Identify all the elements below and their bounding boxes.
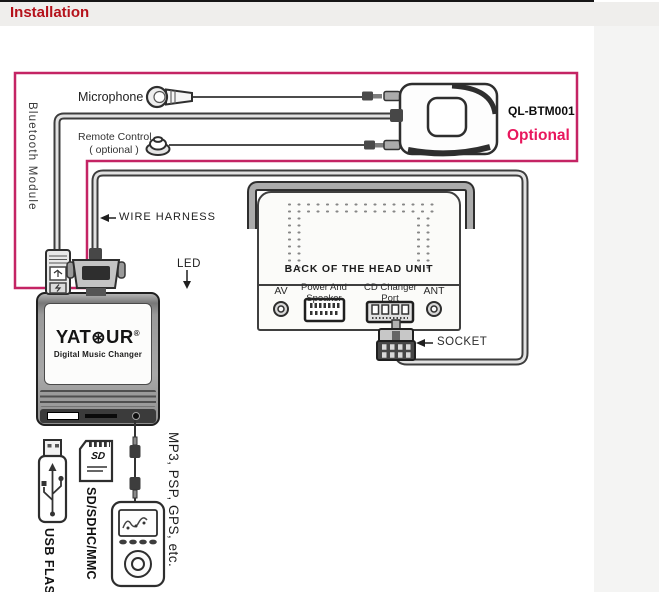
usb-flash-label: USB FLASH bbox=[42, 528, 56, 592]
yatour-ridges bbox=[40, 390, 156, 407]
yatour-bottom-panel bbox=[40, 409, 156, 423]
players-label: MP3, PSP, GPS, etc. bbox=[166, 432, 181, 567]
head-unit-caption: BACK OF THE HEAD UNIT bbox=[259, 263, 459, 275]
page-header: Installation bbox=[0, 2, 659, 26]
yatour-logo: YAT⊛UR® bbox=[45, 328, 151, 347]
yatour-tagline: Digital Music Changer bbox=[45, 350, 151, 359]
mini-usb-connector bbox=[46, 250, 70, 294]
yatour-wheel-icon: ⊛ bbox=[91, 328, 106, 347]
remote-control-label: Remote Control bbox=[78, 131, 148, 144]
sd-card-label: SD/SDHC/MMC bbox=[84, 487, 98, 580]
wire-harness-arrow bbox=[100, 214, 116, 222]
right-gutter bbox=[594, 26, 659, 592]
yatour-brand-left: YAT bbox=[56, 326, 91, 347]
yatour-usb-port bbox=[47, 412, 79, 420]
cd-changer-label-line2: Port bbox=[364, 294, 416, 305]
yatour-device: YAT⊛UR® Digital Music Changer bbox=[36, 292, 160, 426]
vent-holes-top bbox=[285, 201, 435, 215]
usb-flash-icon bbox=[39, 440, 66, 522]
power-speaker-label-line2: Speaker bbox=[300, 294, 348, 305]
sd-card-logo: SD bbox=[85, 451, 111, 462]
audio-cable-icon bbox=[130, 420, 141, 503]
optional-label: Optional bbox=[507, 127, 570, 145]
page-title: Installation bbox=[10, 4, 89, 21]
yatour-brand-right: UR bbox=[106, 326, 134, 347]
head-unit-panel: BACK OF THE HEAD UNIT bbox=[257, 191, 461, 331]
remote-control-cable bbox=[169, 141, 400, 150]
mp3-player-icon bbox=[112, 502, 164, 586]
cd-changer-label: CD Changer Port bbox=[364, 283, 416, 305]
remote-optional-label: ( optional ) bbox=[84, 144, 144, 156]
model-number-label: QL-BTM001 bbox=[508, 104, 575, 118]
page: Installation BACK OF THE HEAD UNIT YAT⊛U… bbox=[0, 0, 659, 592]
microphone-cable bbox=[191, 92, 400, 101]
registered-mark: ® bbox=[134, 329, 140, 338]
bluetooth-module-label: Bluetooth Module bbox=[26, 102, 38, 211]
bluetooth-module-device bbox=[390, 84, 497, 154]
microphone-label: Microphone bbox=[78, 90, 143, 104]
led-label: LED bbox=[177, 258, 201, 270]
av-label: AV bbox=[270, 285, 292, 297]
microphone-icon bbox=[147, 87, 192, 107]
socket-arrow bbox=[416, 339, 433, 347]
wire-harness-label: WIRE HARNESS bbox=[119, 211, 216, 223]
led-arrow bbox=[183, 270, 191, 289]
yatour-aux-jack bbox=[132, 412, 140, 420]
ant-label: ANT bbox=[422, 285, 446, 297]
yatour-faceplate: YAT⊛UR® Digital Music Changer bbox=[44, 303, 152, 385]
yatour-sd-slot bbox=[85, 414, 117, 419]
socket-label: SOCKET bbox=[437, 336, 487, 348]
dsub-connector bbox=[67, 248, 125, 296]
power-speaker-label: Power And Speaker bbox=[300, 283, 348, 305]
